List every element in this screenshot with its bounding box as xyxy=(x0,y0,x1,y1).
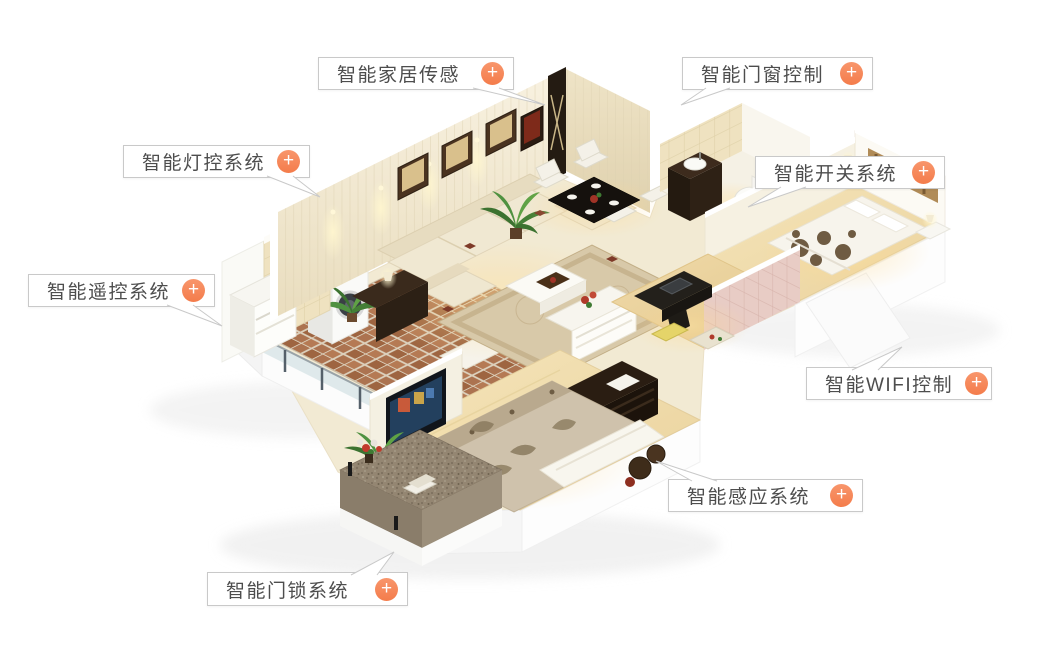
callout-door-lock-label: 智能门锁系统 xyxy=(226,576,349,603)
plus-icon[interactable]: + xyxy=(182,279,205,302)
smart-home-infographic: 智能家居传感 + 智能门窗控制 + 智能灯控系统 + 智能开关系统 + 智能遥控… xyxy=(0,0,1049,645)
callout-home-sensor-label: 智能家居传感 xyxy=(337,60,460,87)
plus-icon[interactable]: + xyxy=(912,161,935,184)
callout-remote-label: 智能遥控系统 xyxy=(47,277,170,304)
callout-switch-label: 智能开关系统 xyxy=(774,159,897,186)
callout-sensing[interactable]: 智能感应系统 + xyxy=(668,479,863,512)
callout-remote[interactable]: 智能遥控系统 + xyxy=(28,274,215,307)
callout-home-sensor[interactable]: 智能家居传感 + xyxy=(318,57,514,90)
callout-switch[interactable]: 智能开关系统 + xyxy=(755,156,945,189)
plus-icon[interactable]: + xyxy=(481,62,504,85)
callout-door-window[interactable]: 智能门窗控制 + xyxy=(682,57,873,90)
callout-door-lock[interactable]: 智能门锁系统 + xyxy=(207,572,408,606)
callout-door-window-label: 智能门窗控制 xyxy=(701,60,824,87)
plus-icon[interactable]: + xyxy=(830,484,853,507)
callout-lighting[interactable]: 智能灯控系统 + xyxy=(123,145,310,178)
callout-lighting-label: 智能灯控系统 xyxy=(142,148,265,175)
plus-icon[interactable]: + xyxy=(965,372,988,395)
callout-wifi[interactable]: 智能WIFI控制 + xyxy=(806,367,992,400)
plus-icon[interactable]: + xyxy=(840,62,863,85)
callout-sensing-label: 智能感应系统 xyxy=(687,482,810,509)
floorplan-render xyxy=(0,0,1049,645)
callout-wifi-label: 智能WIFI控制 xyxy=(825,370,953,397)
plus-icon[interactable]: + xyxy=(375,578,398,601)
plus-icon[interactable]: + xyxy=(277,150,300,173)
